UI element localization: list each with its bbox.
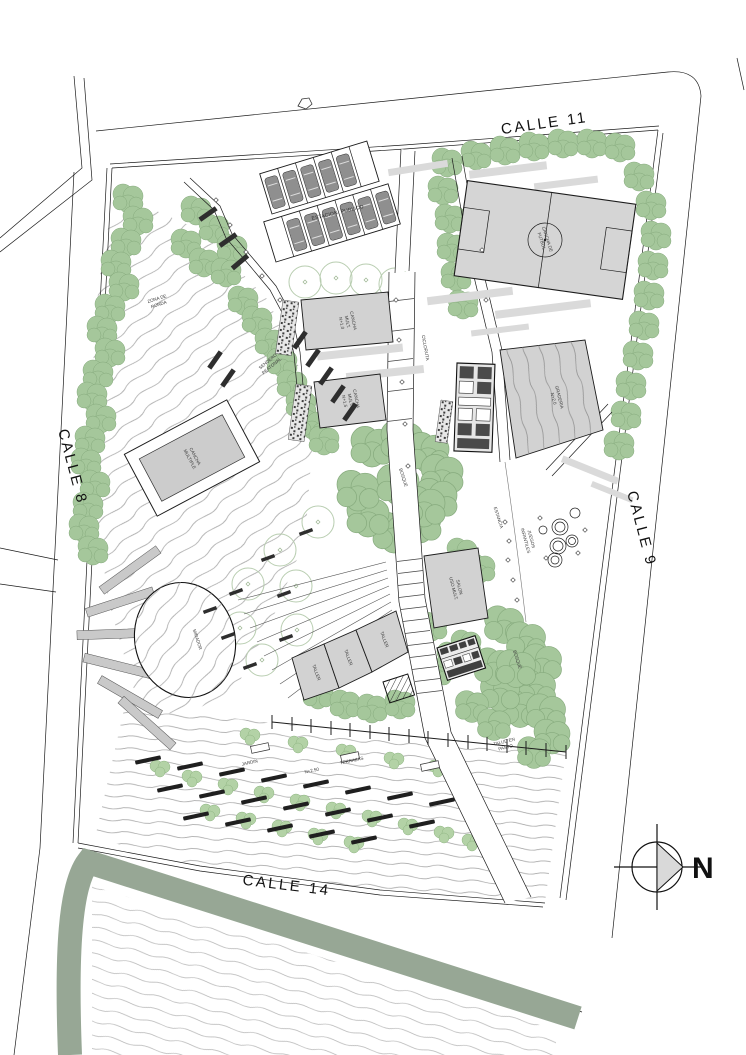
- graderia-area: GRADERIA N+2.0: [500, 340, 603, 458]
- salon-building: SALON USO MULT.: [424, 548, 488, 628]
- court-a: CANCHA MULT. N+1.0: [301, 292, 393, 350]
- cicloruta-label: CICLORUTA: [421, 335, 430, 361]
- street-label-calle-11: CALLE 11: [500, 109, 589, 138]
- playground: JUEGOS INFANTILES: [520, 508, 587, 567]
- south-block-contours: [92, 886, 556, 1055]
- street-label-calle-9: CALLE 9: [623, 489, 659, 568]
- soccer-field: CANCHA DE FUTBOL: [454, 181, 636, 300]
- survey-marker: [298, 98, 312, 109]
- estancia-label: ESTANCIA: [493, 506, 505, 529]
- services-building: [454, 363, 495, 452]
- site-plan-drawing: CANCHA DE FUTBOL ESTACION. PUBLICO CANCH…: [0, 0, 746, 1055]
- north-label: N: [692, 852, 714, 885]
- site-plan-canvas: CANCHA DE FUTBOL ESTACION. PUBLICO CANCH…: [0, 0, 746, 1055]
- court-b: CANCHA MULT. N+1.5: [314, 374, 386, 428]
- north-arrow-icon: N: [614, 824, 714, 910]
